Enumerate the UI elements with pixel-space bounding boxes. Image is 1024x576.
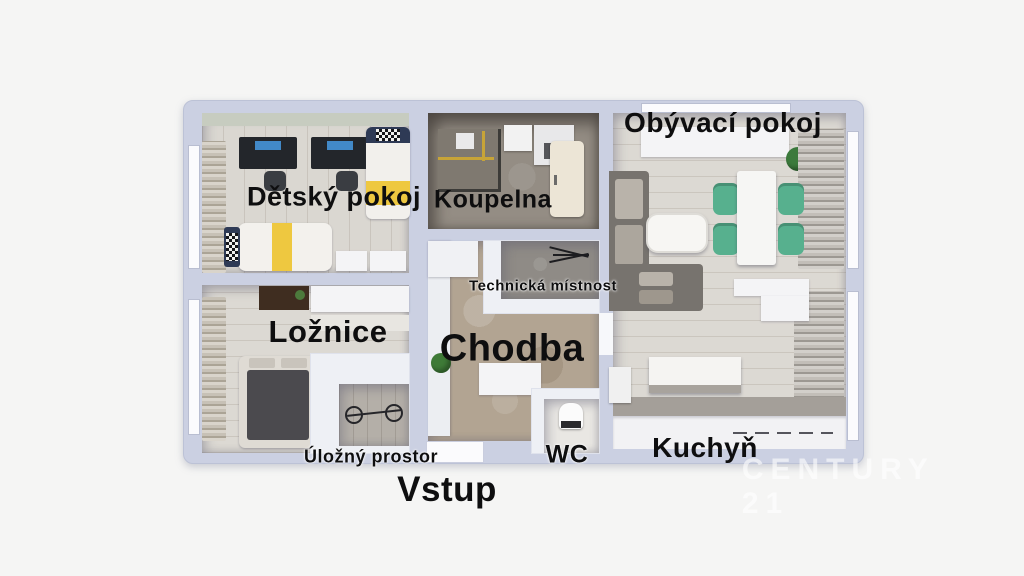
dining-chair-1 [713,183,739,215]
childrens-wall-texture [202,113,409,126]
label-wc: WC [546,441,589,470]
monitor-2 [327,141,353,150]
bathroom-door-panel [550,141,584,217]
toilet [559,403,583,429]
label-living-room: Obývací pokoj [624,107,822,139]
desk-2 [311,137,369,169]
dining-chair-2 [713,223,739,255]
sofa-cushion-1 [615,179,643,219]
sofa-cushion-2 [615,225,643,265]
desk-1 [239,137,297,169]
shower [438,129,501,192]
coffee-table [646,213,708,253]
label-technical-room: Technická místnost [469,278,617,295]
bedroom-wardrobe-top [311,286,409,312]
nightstand-1 [336,251,367,271]
dining-chair-3 [778,183,804,215]
bicycle-wheel-1 [345,406,363,424]
label-bathroom: Koupelna [434,186,552,215]
kitchen-peninsula-1 [734,279,809,296]
bedroom-bed [239,356,317,448]
sofa-pillow-1 [639,272,673,286]
bed-1-checker-pillow [226,233,238,261]
bedroom-pillow-1 [249,358,275,368]
bed-1-yellow-stripe [272,223,292,271]
monitor-1 [255,141,281,150]
dining-table [737,171,776,265]
floor-plan-image: Dětský pokoj Koupelna Obývací pokoj Tech… [0,0,1024,576]
dining-chair-4 [778,223,804,255]
label-hallway: Chodba [440,328,584,371]
sofa-horizontal-arm [609,264,703,311]
window-right-living [847,131,859,269]
bicycle-wheel-2 [385,404,403,422]
shelf-plant [295,290,305,300]
century21-watermark: CENTURY 21 [742,453,934,521]
bed-1 [238,223,332,271]
bed-2-checker-pillow [376,129,400,141]
window-left-childrens [188,145,200,269]
apartment-outline: Dětský pokoj Koupelna Obývací pokoj Tech… [183,100,864,464]
drying-rack-bar-3 [553,254,589,256]
label-childrens-room: Dětský pokoj [247,182,421,213]
bedroom-curtain [202,297,226,441]
kitchen-stove [609,367,631,403]
kitchen-island [649,357,741,393]
label-storage: Úložný prostor [304,447,438,468]
hallway-opening [599,313,613,355]
gold-pipe-h [438,157,494,160]
childrens-curtain [202,141,226,273]
bedroom-pillow-2 [281,358,307,368]
kitchen-peninsula-2 [761,296,809,321]
room-living-kitchen [613,113,846,449]
bedroom-blanket [247,370,309,440]
bedroom-shelf [259,286,309,310]
door-handle [554,175,557,185]
room-storage [339,384,409,446]
label-bedroom: Ložnice [269,314,388,350]
gold-pipe-v [482,131,485,161]
window-right-kitchen [847,291,859,441]
window-left-bedroom [188,299,200,435]
nightstand-2 [370,251,406,271]
shower-head-unit [456,133,474,149]
washing-machine [504,125,532,151]
sofa-pillow-2 [639,290,673,304]
living-curtain [798,129,844,269]
label-entrance: Vstup [397,470,497,510]
toilet-base [561,421,581,428]
hallway-cabinet-top [428,241,478,277]
